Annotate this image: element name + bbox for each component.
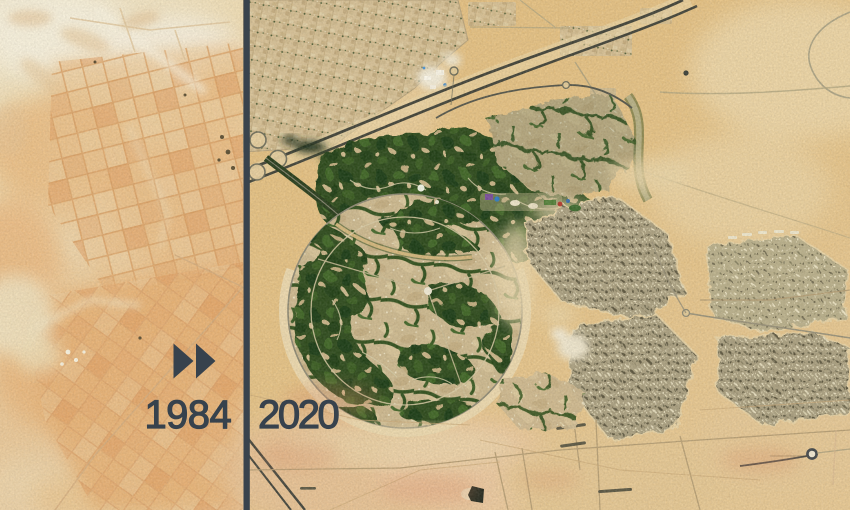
svg-text:2020: 2020	[258, 393, 339, 437]
svg-text:1984: 1984	[145, 393, 232, 437]
